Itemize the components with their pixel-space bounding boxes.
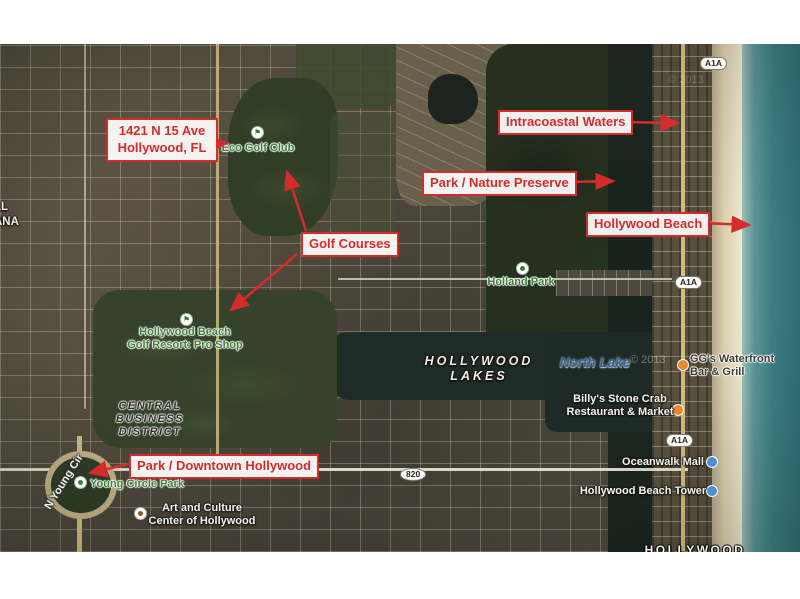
cbd-line3: DISTRICT bbox=[116, 426, 184, 439]
restaurant-icon[interactable] bbox=[677, 359, 689, 371]
golf-flag-icon[interactable]: ⚑ bbox=[251, 126, 264, 139]
shopping-icon[interactable] bbox=[706, 456, 718, 468]
a1a-shield: A1A bbox=[675, 276, 702, 289]
route-820-shield: 820 bbox=[400, 468, 426, 481]
flag-glyph: ⚑ bbox=[183, 316, 190, 324]
poi-art-culture-center[interactable]: Art and Culture Center of Hollywood bbox=[149, 502, 256, 528]
building-icon[interactable] bbox=[706, 485, 718, 497]
satellite-map[interactable]: © 2013 © 2013 ⚑ Eco Golf Club ⚑ Hollywoo… bbox=[0, 44, 800, 552]
culture-dot bbox=[138, 511, 143, 516]
poi-golf-resort[interactable]: Hollywood Beach Golf Resort: Pro Shop bbox=[127, 326, 243, 352]
park-icon[interactable] bbox=[74, 476, 87, 489]
a1a-shield: A1A bbox=[700, 57, 727, 70]
park-dot bbox=[78, 480, 83, 485]
poi-art-culture-line1: Art and Culture bbox=[149, 502, 256, 515]
poi-holland-park[interactable]: Holland Park bbox=[487, 276, 554, 289]
golf-flag-icon[interactable]: ⚑ bbox=[180, 313, 193, 326]
poi-oceanwalk-mall[interactable]: Oceanwalk Mall bbox=[622, 456, 704, 469]
neighborhood-fragment-line1: LL bbox=[0, 201, 8, 215]
poi-hollywood-beach-tower[interactable]: Hollywood Beach Tower bbox=[580, 485, 706, 498]
poi-billys-line2: Restaurant & Market bbox=[567, 406, 674, 419]
culture-center-icon[interactable] bbox=[134, 507, 147, 520]
flag-glyph: ⚑ bbox=[254, 129, 261, 137]
screenshot-root: { "annotations": { "accent_color": "#d62… bbox=[0, 0, 800, 599]
callout-intracoastal-waters: Intracoastal Waters bbox=[498, 110, 633, 135]
neighborhood-fragment-line2: ANA bbox=[0, 216, 19, 230]
callout-hollywood-beach: Hollywood Beach bbox=[586, 212, 710, 237]
poi-young-circle-park[interactable]: Young Circle Park bbox=[90, 478, 184, 491]
poi-ggs-waterfront[interactable]: GG's Waterfront Bar & Grill bbox=[690, 353, 774, 379]
poi-ggs-line1: GG's Waterfront bbox=[690, 353, 774, 366]
watermark-imagery: © 2013 bbox=[668, 74, 704, 86]
area-hollywood-lakes: HOLLYWOOD LAKES bbox=[425, 354, 534, 384]
city-hollywood: HOLLYWOOD bbox=[645, 543, 746, 552]
park-icon[interactable] bbox=[516, 262, 529, 275]
cbd-line2: BUSINESS bbox=[116, 413, 184, 426]
poi-golf-resort-line2: Golf Resort: Pro Shop bbox=[127, 339, 243, 352]
cbd-line1: CENTRAL bbox=[116, 400, 184, 413]
restaurant-icon[interactable] bbox=[672, 404, 684, 416]
callout-address-line1: 1421 N 15 Ave bbox=[114, 123, 210, 140]
callout-downtown-hollywood: Park / Downtown Hollywood bbox=[129, 454, 319, 479]
callout-golf-courses: Golf Courses bbox=[301, 232, 399, 257]
water-north-lake: North Lake bbox=[560, 355, 631, 371]
a1a-shield: A1A bbox=[666, 434, 693, 447]
area-central-business-district: CENTRAL BUSINESS DISTRICT bbox=[116, 400, 184, 439]
watermark-copyright: © 2013 bbox=[630, 354, 666, 366]
poi-ggs-line2: Bar & Grill bbox=[690, 366, 774, 379]
poi-eco-golf-club[interactable]: Eco Golf Club bbox=[222, 142, 295, 155]
park-dot bbox=[520, 266, 525, 271]
poi-billys-stone-crab[interactable]: Billy's Stone Crab Restaurant & Market bbox=[567, 393, 674, 419]
poi-billys-line1: Billy's Stone Crab bbox=[567, 393, 674, 406]
callout-address-line2: Hollywood, FL bbox=[114, 140, 210, 157]
area-hollywood-lakes-line2: LAKES bbox=[425, 369, 534, 384]
callout-nature-preserve: Park / Nature Preserve bbox=[422, 171, 577, 196]
area-hollywood-lakes-line1: HOLLYWOOD bbox=[425, 354, 534, 369]
poi-golf-resort-line1: Hollywood Beach bbox=[127, 326, 243, 339]
poi-art-culture-line2: Center of Hollywood bbox=[149, 515, 256, 528]
callout-address: 1421 N 15 Ave Hollywood, FL bbox=[106, 118, 218, 162]
